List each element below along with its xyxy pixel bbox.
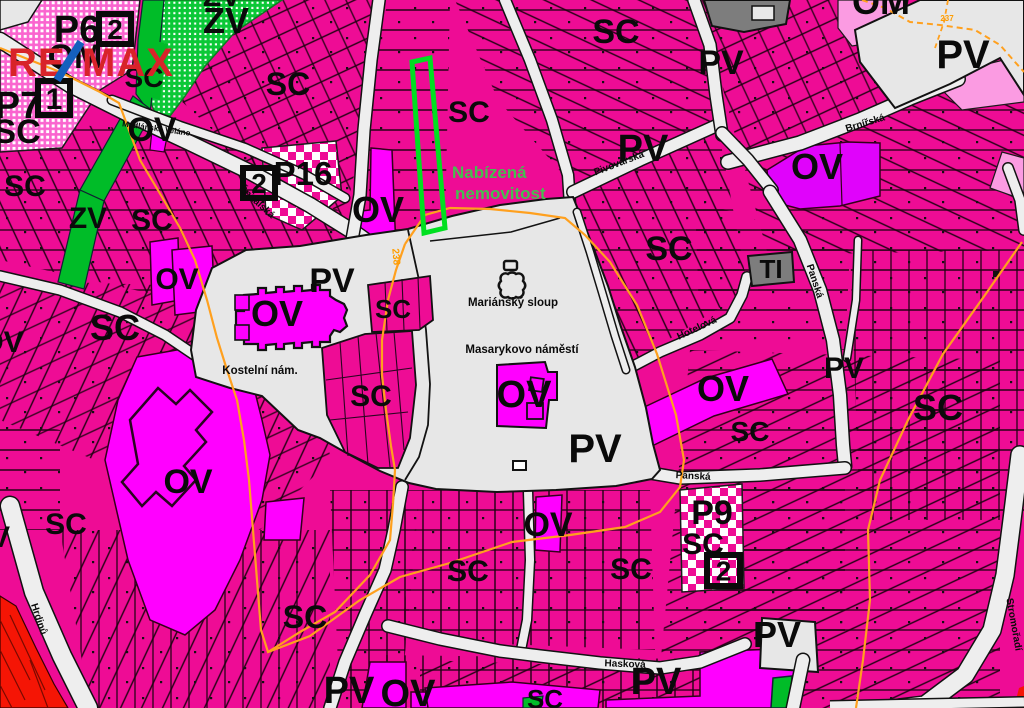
svg-text:Mariánský sloup: Mariánský sloup	[468, 297, 558, 309]
svg-text:SC: SC	[592, 13, 639, 51]
svg-text:SC: SC	[731, 416, 770, 447]
svg-text:OV: OV	[791, 146, 843, 187]
svg-text:nemovitost: nemovitost	[455, 184, 546, 203]
svg-text:PV: PV	[698, 44, 744, 82]
svg-text:ZV: ZV	[69, 202, 107, 235]
svg-text:SC: SC	[283, 599, 327, 635]
svg-text:SC: SC	[913, 387, 963, 428]
svg-text:OV: OV	[352, 189, 404, 230]
svg-text:OV: OV	[697, 368, 749, 409]
svg-text:PV: PV	[824, 352, 864, 385]
svg-text:SC: SC	[4, 170, 46, 203]
svg-text:OV: OV	[163, 463, 212, 501]
svg-text:MAX: MAX	[82, 41, 174, 85]
svg-text:TI: TI	[759, 254, 782, 284]
svg-text:OV: OV	[381, 673, 437, 708]
svg-text:OM: OM	[852, 0, 910, 22]
svg-text:ZV: ZV	[203, 0, 241, 13]
svg-text:238: 238	[389, 248, 401, 266]
svg-text:2: 2	[716, 556, 732, 587]
svg-text:SC: SC	[266, 66, 310, 102]
svg-text:SC: SC	[90, 307, 140, 348]
svg-text:SC: SC	[447, 555, 489, 588]
svg-text:PV: PV	[936, 33, 990, 77]
svg-text:OV: OV	[251, 293, 303, 334]
svg-text:Panská: Panská	[675, 470, 711, 483]
svg-text:P9: P9	[691, 494, 733, 532]
svg-text:Kostelní nám.: Kostelní nám.	[222, 365, 297, 377]
svg-text:SC: SC	[131, 204, 173, 237]
svg-text:SC: SC	[448, 96, 490, 129]
svg-text:PV: PV	[309, 262, 355, 300]
svg-text:SC: SC	[350, 380, 392, 413]
svg-text:Hasková: Hasková	[604, 658, 646, 670]
svg-text:P16: P16	[274, 155, 333, 192]
svg-text:SC: SC	[45, 508, 87, 541]
svg-text:Masarykovo náměstí: Masarykovo náměstí	[465, 344, 579, 356]
svg-text:OV: OV	[155, 263, 198, 296]
svg-text:SC: SC	[645, 230, 692, 268]
svg-text:PV: PV	[753, 614, 801, 655]
svg-text:PV: PV	[568, 427, 622, 471]
svg-text:SC: SC	[610, 553, 652, 586]
svg-text:V: V	[0, 521, 10, 554]
svg-text:SC: SC	[527, 684, 563, 708]
svg-text:OV: OV	[497, 374, 553, 416]
svg-text:OV: OV	[0, 326, 24, 359]
svg-text:1: 1	[46, 83, 63, 116]
svg-text:Nabízená: Nabízená	[452, 163, 527, 182]
svg-text:237: 237	[940, 14, 954, 23]
svg-text:PV: PV	[324, 670, 375, 708]
svg-text:OV: OV	[523, 506, 572, 544]
svg-text:SC: SC	[375, 294, 411, 324]
